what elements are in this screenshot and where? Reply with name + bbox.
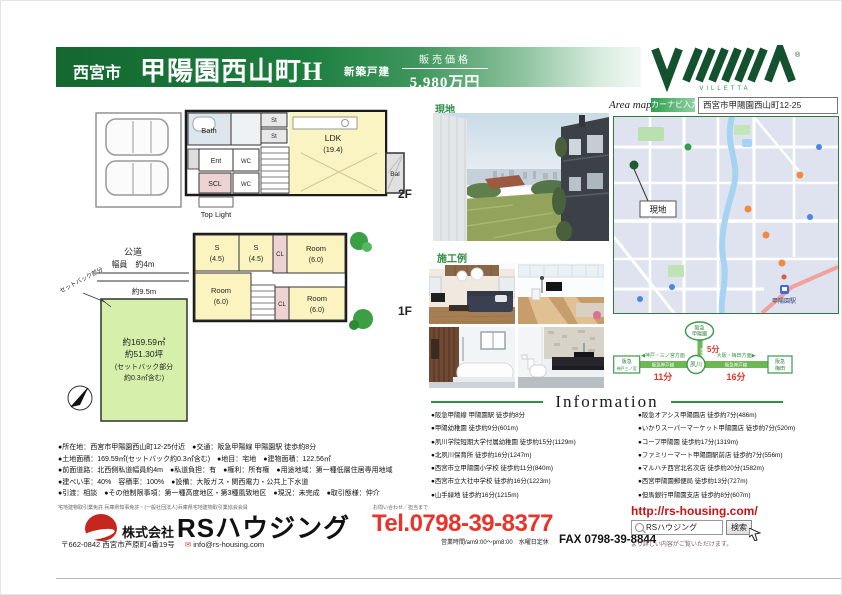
search-note: より詳しい内容がご覧いただけます。: [631, 539, 732, 548]
carnavi-badge: カーナビ入力: [651, 98, 695, 112]
information-item: ●阪急甲陽線 甲陽園駅 徒歩約8分: [431, 409, 637, 422]
brand-logo: ® VILLETTA: [649, 45, 801, 93]
tv: [431, 293, 445, 302]
cushion: [495, 295, 507, 302]
map-pond: [742, 139, 752, 147]
room-s1: [195, 235, 239, 271]
station-shukugawa-label: 夙川: [690, 362, 702, 369]
works-photo-bathroom: [429, 327, 515, 388]
setback-label: セットバック部分: [59, 265, 104, 295]
works-photo-washroom: [518, 327, 604, 388]
search-icon: [635, 523, 644, 532]
area-note2: 約0.3㎡含む): [124, 373, 164, 382]
trees: [349, 232, 373, 330]
property-detail-line: ●所在地：西宮市甲陽園西山町12-25付近 ●交通：阪急甲陽線 甲陽園駅 徒歩約…: [58, 442, 450, 454]
wash-floor: [518, 377, 604, 388]
station-sannomiya-line2: 神戸三ノ宮: [617, 365, 637, 371]
city-label: 西宮市: [73, 59, 121, 83]
map-station-label: 甲陽園駅: [772, 297, 796, 305]
phone-number: Tel.0798-39-8377: [372, 510, 553, 538]
label-st2: St: [271, 134, 277, 140]
label-room3: Room: [307, 294, 327, 303]
frontage-label: 約9.5m: [132, 286, 156, 296]
washroom: [231, 113, 261, 145]
information-column-right: ●阪急オアシス甲陽園店 徒歩約7分(486m)●いかりスーパーマーケット甲陽園店…: [638, 409, 841, 502]
information-item: ●阪急オアシス甲陽園店 徒歩約7分(486m): [638, 409, 841, 422]
paper-holder: [522, 355, 527, 359]
email-icon: ✉: [185, 540, 191, 549]
wall-tv: [546, 282, 562, 291]
label-s2: S: [253, 243, 258, 252]
label-scl: SCL: [208, 181, 222, 188]
carnavi-address: 西宮市甲陽園西山町12-25: [698, 97, 838, 114]
bottom-rule: [56, 578, 842, 579]
room-1: [287, 235, 345, 273]
left-wall: [433, 113, 467, 241]
company-email: info@rs-housing.com: [193, 540, 264, 549]
station-sannomiya-line1: 阪急: [622, 358, 632, 365]
label-ldk: LDK: [325, 133, 342, 143]
header-band: 西宮市 甲陽園西山町H 新築戸建 販売価格 5,980万円: [56, 47, 641, 87]
property-title: 甲陽園西山町H: [140, 51, 323, 88]
information-item: ●コープ甲陽園 徒歩約17分(1319m): [638, 436, 841, 449]
road-width-label: 幅員 約4m: [111, 259, 154, 269]
company-address-row: 〒662-0842 西宮市芦原町4番19号 ✉info@rs-housing.c…: [61, 539, 264, 550]
information-item: ●甲陽幼稚園 徒歩約9分(601m): [431, 422, 637, 435]
website-url: http://rs-housing.com/: [631, 504, 758, 518]
information-rule-left: [431, 401, 543, 403]
property-detail-line: ●前面道路：北西側私道幅員約4m ●私道負担：有 ●権利：所有権 ●用途地域：第…: [58, 465, 450, 477]
new-build-badge: 新築戸建: [344, 64, 390, 79]
label-room2: Room: [211, 286, 231, 295]
table: [449, 305, 469, 311]
station-koyoen-line2: 甲陽園: [692, 331, 707, 338]
map-park: [638, 127, 664, 141]
business-hours: 営業時間/am9:00～pm8:00 水曜日定休: [441, 537, 549, 546]
label-ent: Ent: [211, 158, 222, 165]
time-sannomiya: 11分: [654, 371, 673, 382]
label-st1: St: [271, 118, 277, 124]
price-label: 販売価格: [402, 51, 488, 69]
label-s1-size: (4.5): [210, 256, 224, 263]
label-ldk-size: (19.4): [323, 145, 343, 154]
station-koyoen-line1: 阪急: [694, 325, 704, 332]
label-wc1: WC: [241, 159, 252, 165]
information-column-left: ●阪急甲陽線 甲陽園駅 徒歩約8分●甲陽幼稚園 徒歩約9分(601m)●夙川学院…: [431, 409, 637, 502]
property-detail-line: ●建ぺい率：40% 容積率：100% ●設備：大阪ガス・関西電力・公共上下水道: [58, 477, 450, 489]
cursor-icon: [749, 528, 761, 541]
brand-mark-strokes: [655, 49, 792, 81]
stairs-1f: [251, 285, 275, 320]
road-label: 公道: [124, 246, 142, 257]
label-room3-size: (6.0): [310, 307, 324, 314]
floorplan-2f: Bath Ent SCL WC WC St St LDK (19.4) Bal …: [61, 107, 406, 225]
highside-windows: [518, 265, 604, 277]
label-toplight: Top Light: [201, 210, 232, 219]
area-map-graphic: 甲陽園駅 現地: [614, 117, 838, 313]
floorplan-1f: S (4.5) S (4.5) CL Room (6.0) Room (6.0)…: [191, 229, 386, 332]
station-umeda-line2: 梅田: [775, 365, 785, 372]
label-s1: S: [214, 243, 219, 252]
site-plan: 公道 幅員 約4m 約9.5m セットバック部分 約169.59㎡ 約51.30…: [59, 241, 191, 423]
label-cl2: CL: [278, 302, 286, 308]
window: [429, 277, 441, 295]
car-top: [106, 119, 168, 155]
setback-leader: [83, 293, 105, 302]
property-detail-line: ●引渡：相談 ●その他制限事項：第一種高度地区・第3種風致地区 ●現況：未完成 …: [58, 488, 450, 500]
site-pin-label: 現地: [649, 205, 667, 215]
information-item: ●山手緑地 徒歩約16分(1215m): [431, 489, 637, 502]
label-room2-size: (6.0): [214, 299, 228, 306]
price-value: 5,980万円: [402, 71, 488, 92]
information-item: ●西宮甲陽園郵便局 徒歩約13分(727m): [638, 475, 841, 488]
information-item: ●西宮市立大社中学校 徒歩約16分(1223m): [431, 475, 637, 488]
time-umeda: 16分: [726, 371, 745, 382]
station-icon-window: [782, 287, 787, 291]
flyer-page: 西宮市 甲陽園西山町H 新築戸建 販売価格 5,980万円 ® VILLETTA…: [0, 0, 842, 595]
kobe-line-label-right: 阪急神戸線: [725, 362, 748, 369]
bath-floor: [429, 382, 515, 388]
map-park: [734, 125, 750, 135]
site-photo: [433, 113, 609, 241]
pendant-light: [471, 268, 483, 280]
route-diagram: 阪急甲陽線 阪急神戸線 阪急神戸線 ◀神戸・三ノ宮方面 大阪・梅田方面▶ 阪急 …: [613, 321, 839, 387]
bath-shelf: [431, 339, 439, 359]
information-item: ●北夙川保育所 徒歩約16分(1247m): [431, 449, 637, 462]
information-item: ●西宮市立甲陽園小学校 徒歩約11分(840m): [431, 462, 637, 475]
porch-tile: [188, 149, 199, 169]
area-note1: (セットバック部分: [115, 362, 173, 371]
label-room1-size: (6.0): [309, 257, 323, 264]
search-input: RSハウジング: [631, 520, 723, 535]
information-item: ●いかりスーパーマーケット甲陽園店 徒歩約7分(520m): [638, 422, 841, 435]
direction-left: ◀神戸・三ノ宮方面: [641, 352, 685, 359]
stairs-2f: [261, 147, 289, 193]
works-photo-living1: [429, 263, 515, 324]
information-item: ●ファミリーマート甲陽園駅前店 徒歩約7分(556m): [638, 449, 841, 462]
map-park: [668, 265, 684, 277]
information-item: ●但馬銀行甲陽園支店 徒歩約8分(607m): [638, 489, 841, 502]
area-map-panel: 甲陽園駅 現地: [613, 116, 839, 314]
toilet: [530, 365, 546, 377]
label-room1: Room: [306, 244, 326, 253]
price-block: 販売価格 5,980万円: [402, 51, 488, 92]
works-photo-living2: [518, 263, 604, 324]
toplight-box: [199, 197, 233, 207]
label-s2-size: (4.5): [249, 256, 263, 263]
area-tsubo: 約51.30坪: [125, 349, 164, 359]
site-pin: [630, 161, 639, 170]
brand-subtext: VILLETTA: [699, 86, 750, 92]
heater: [532, 289, 540, 300]
room-3: [289, 287, 345, 320]
area-sqm: 約169.59㎡: [123, 337, 166, 347]
kobe-line-label-left: 阪急神戸線: [652, 362, 675, 369]
floor-label-2f: 2F: [398, 187, 412, 201]
information-rule-right: [671, 401, 783, 403]
company-logo-mark: [85, 514, 117, 541]
room-2: [195, 273, 251, 320]
label-bal: Bal: [390, 171, 400, 178]
label-cl1: CL: [276, 252, 284, 258]
information-item: ●夙川学院短期大学付属幼稚園 徒歩約15分(1129m): [431, 436, 637, 449]
property-details: ●所在地：西宮市甲陽園西山町12-25付近 ●交通：阪急甲陽線 甲陽園駅 徒歩約…: [58, 442, 450, 500]
compass-icon: [68, 386, 92, 410]
room-s2: [239, 235, 273, 271]
property-detail-line: ●土地面積：169.59㎡(セットバック約0.3㎡含む) ●地目：宅地 ●建物面…: [58, 454, 450, 466]
counter: [552, 357, 604, 366]
kitchen-counter: [293, 117, 357, 129]
floor-label-1f: 1F: [398, 304, 412, 318]
area-map-label: Area map: [609, 99, 652, 111]
label-wc2: WC: [241, 182, 252, 188]
information-item: ●マルハチ西宮北名次店 徒歩約20分(1582m): [638, 462, 841, 475]
time-koyo: 5分: [707, 344, 719, 354]
company-address: 〒662-0842 西宮市芦原町4番19号: [61, 540, 175, 549]
pendant-light: [457, 271, 467, 281]
registered-mark: ®: [795, 51, 801, 59]
direction-right: 大阪・梅田方面▶: [717, 352, 756, 359]
label-bath: Bath: [201, 126, 216, 135]
land-plot: [101, 299, 187, 421]
pink-cushion: [593, 311, 601, 319]
site-search-mock: RSハウジング 検索: [631, 520, 752, 535]
car-bottom: [106, 161, 168, 195]
station-umeda-line1: 阪急: [775, 358, 785, 365]
search-value: RSハウジング: [646, 522, 697, 533]
